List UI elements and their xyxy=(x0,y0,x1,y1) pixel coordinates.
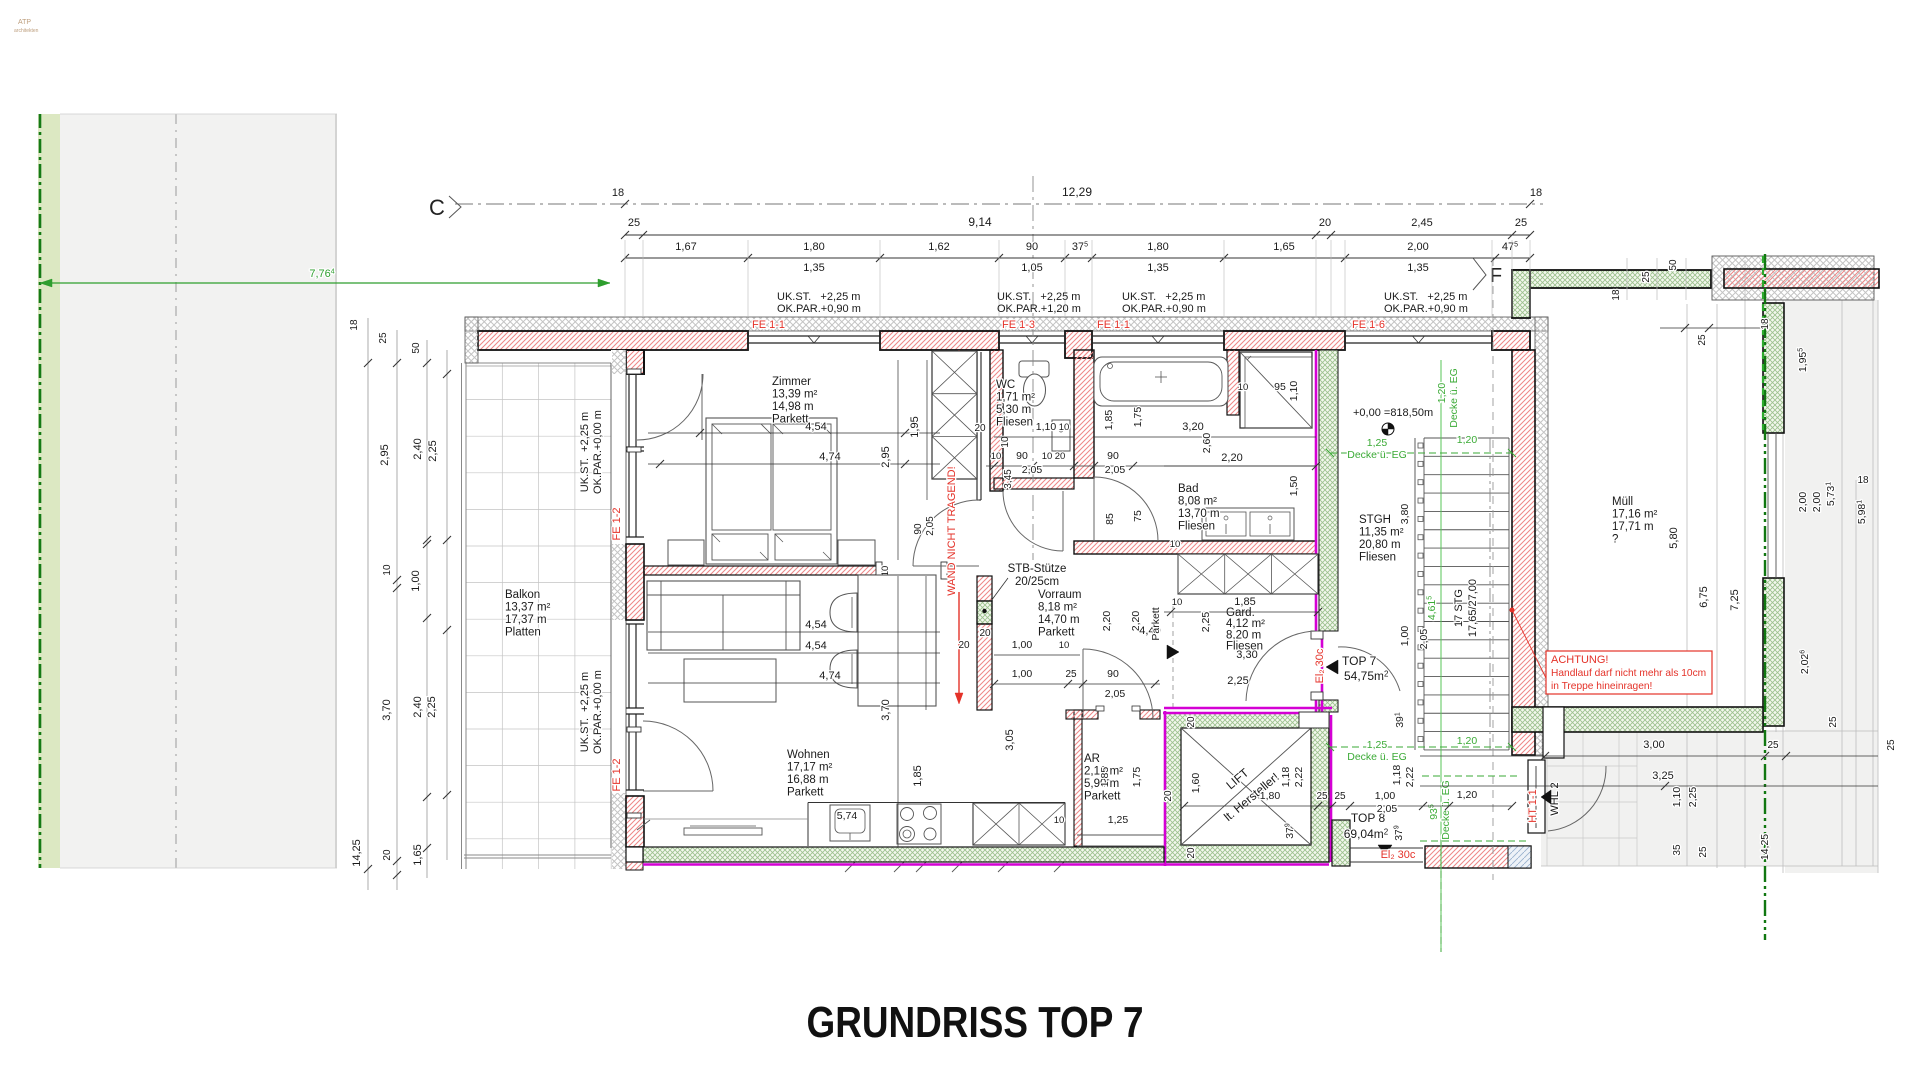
svg-text:UK.ST. +2,25 m: UK.ST. +2,25 m xyxy=(777,291,860,303)
svg-text:1,65: 1,65 xyxy=(412,844,424,865)
svg-text:13,37 m²: 13,37 m² xyxy=(505,602,551,614)
svg-text:1,00: 1,00 xyxy=(1012,639,1033,651)
svg-text:25: 25 xyxy=(378,332,389,344)
svg-text:3,45: 3,45 xyxy=(1003,469,1014,489)
svg-text:FE 1-2: FE 1-2 xyxy=(611,758,623,791)
svg-text:95: 95 xyxy=(1274,381,1286,393)
svg-text:GRUNDRISS TOP 7: GRUNDRISS TOP 7 xyxy=(807,998,1144,1047)
svg-text:25: 25 xyxy=(1828,716,1839,728)
svg-text:C: C xyxy=(429,195,445,220)
svg-text:13,39 m²: 13,39 m² xyxy=(772,389,818,401)
svg-text:18: 18 xyxy=(1857,475,1869,486)
svg-text:Zimmer: Zimmer xyxy=(772,376,811,388)
svg-text:2,95: 2,95 xyxy=(379,444,391,465)
svg-text:FE 1-3: FE 1-3 xyxy=(1002,319,1035,331)
svg-text:25: 25 xyxy=(1065,669,1077,680)
svg-text:90: 90 xyxy=(1107,668,1119,680)
svg-text:1,35: 1,35 xyxy=(803,262,824,274)
svg-text:2,25: 2,25 xyxy=(426,696,438,717)
svg-text:7,25: 7,25 xyxy=(1729,589,1741,610)
svg-text:1,60: 1,60 xyxy=(1190,773,1202,794)
svg-text:1,10: 1,10 xyxy=(1036,421,1057,433)
svg-text:1,75: 1,75 xyxy=(1132,407,1144,428)
svg-text:WC: WC xyxy=(996,379,1015,391)
svg-text:18: 18 xyxy=(1611,289,1622,301)
svg-text:4,54: 4,54 xyxy=(805,619,826,631)
svg-text:1,18: 1,18 xyxy=(1280,767,1292,788)
svg-text:1,80: 1,80 xyxy=(1260,790,1281,802)
svg-text:18: 18 xyxy=(1530,187,1542,199)
svg-text:25: 25 xyxy=(1316,791,1328,802)
svg-text:1,71 m²: 1,71 m² xyxy=(996,392,1035,404)
svg-text:WAND NICHT TRAGEND!: WAND NICHT TRAGEND! xyxy=(946,466,958,595)
svg-text:8,18 m²: 8,18 m² xyxy=(1038,602,1077,614)
svg-text:Vorraum: Vorraum xyxy=(1038,589,1081,601)
svg-text:25: 25 xyxy=(1886,739,1897,751)
svg-text:1,18: 1,18 xyxy=(1391,765,1403,786)
svg-text:75: 75 xyxy=(1132,510,1144,522)
svg-text:4,54: 4,54 xyxy=(805,640,826,652)
svg-text:20: 20 xyxy=(1055,451,1066,462)
svg-text:9,14: 9,14 xyxy=(968,215,992,229)
svg-text:1,10: 1,10 xyxy=(1288,381,1300,402)
svg-text:OK.PAR.+0,00 m: OK.PAR.+0,00 m xyxy=(592,410,604,494)
svg-text:OK.PAR.+0,00 m: OK.PAR.+0,00 m xyxy=(592,670,604,754)
svg-text:54,75m2: 54,75m2 xyxy=(1344,669,1389,683)
svg-text:ATP: ATP xyxy=(18,19,31,26)
svg-text:50: 50 xyxy=(411,342,422,354)
svg-text:1,62: 1,62 xyxy=(928,241,949,253)
svg-text:10: 10 xyxy=(1172,597,1183,608)
svg-text:3,30: 3,30 xyxy=(1236,649,1257,661)
svg-text:25: 25 xyxy=(1334,791,1346,802)
svg-text:Müll: Müll xyxy=(1612,496,1633,508)
svg-text:17,37 m: 17,37 m xyxy=(505,614,547,626)
svg-text:10: 10 xyxy=(1000,436,1011,448)
svg-text:FE 1-2: FE 1-2 xyxy=(611,507,623,540)
svg-text:2,05: 2,05 xyxy=(1377,803,1398,815)
svg-text:El₂ 30c: El₂ 30c xyxy=(1381,849,1416,861)
svg-text:1,20: 1,20 xyxy=(1457,735,1478,747)
svg-text:20: 20 xyxy=(382,849,393,861)
svg-text:1,35: 1,35 xyxy=(1407,262,1428,274)
svg-text:3,70: 3,70 xyxy=(381,699,393,720)
svg-text:90: 90 xyxy=(1026,241,1038,253)
svg-text:2,25: 2,25 xyxy=(1200,612,1212,633)
svg-text:3,00: 3,00 xyxy=(1643,739,1664,751)
svg-text:50: 50 xyxy=(1668,259,1679,271)
svg-text:14,25: 14,25 xyxy=(1759,834,1771,860)
svg-text:10: 10 xyxy=(1238,382,1249,393)
svg-text:2,00: 2,00 xyxy=(1407,241,1428,253)
svg-text:8,20 m: 8,20 m xyxy=(1226,629,1261,641)
svg-text:14,70 m: 14,70 m xyxy=(1038,614,1080,626)
svg-text:Parkett: Parkett xyxy=(787,787,824,799)
svg-text:10: 10 xyxy=(991,451,1002,462)
svg-text:OK.PAR.+0,90 m: OK.PAR.+0,90 m xyxy=(1384,303,1468,315)
svg-text:1,65: 1,65 xyxy=(1273,241,1294,253)
svg-text:4,74: 4,74 xyxy=(819,451,840,463)
svg-text:UK.ST. +2,25 m: UK.ST. +2,25 m xyxy=(997,291,1080,303)
svg-text:UK.ST. +2,25 m: UK.ST. +2,25 m xyxy=(1384,291,1467,303)
svg-text:OK.PAR.+0,90 m: OK.PAR.+0,90 m xyxy=(777,303,861,315)
svg-text:2,40: 2,40 xyxy=(412,438,424,459)
svg-text:OK.PAR.+0,90 m: OK.PAR.+0,90 m xyxy=(1122,303,1206,315)
svg-text:1,05: 1,05 xyxy=(1021,262,1042,274)
svg-text:2,05: 2,05 xyxy=(1418,629,1430,650)
svg-text:18: 18 xyxy=(612,187,624,199)
svg-text:1,85: 1,85 xyxy=(1099,767,1111,788)
svg-text:17,71 m: 17,71 m xyxy=(1612,521,1654,533)
svg-text:3,05: 3,05 xyxy=(1004,729,1016,750)
svg-text:2,45: 2,45 xyxy=(1411,217,1432,229)
svg-text:1,80: 1,80 xyxy=(1147,241,1168,253)
svg-text:10: 10 xyxy=(1054,815,1065,826)
svg-text:17,17 m²: 17,17 m² xyxy=(787,762,833,774)
svg-text:Fliesen: Fliesen xyxy=(1359,552,1396,564)
svg-text:20: 20 xyxy=(1163,790,1174,802)
svg-text:3,80: 3,80 xyxy=(1399,504,1411,525)
svg-text:1,00: 1,00 xyxy=(1375,790,1396,802)
svg-text:25: 25 xyxy=(1767,740,1779,751)
svg-text:in Treppe hineinragen!: in Treppe hineinragen! xyxy=(1551,681,1652,692)
svg-text:25: 25 xyxy=(1698,846,1709,858)
svg-text:2,22: 2,22 xyxy=(1404,767,1416,788)
svg-text:14,25: 14,25 xyxy=(351,839,363,867)
svg-text:El₂ 30c: El₂ 30c xyxy=(1314,648,1326,683)
svg-text:Decke ü. EG: Decke ü. EG xyxy=(1347,449,1407,461)
svg-text:20: 20 xyxy=(1186,716,1197,728)
svg-text:Parkett: Parkett xyxy=(772,414,809,426)
svg-text:ACHTUNG!: ACHTUNG! xyxy=(1551,654,1608,666)
svg-text:Decke ü. EG: Decke ü. EG xyxy=(1347,751,1407,763)
svg-text:17,65/27,00: 17,65/27,00 xyxy=(1467,579,1479,637)
svg-text:Bad: Bad xyxy=(1178,483,1198,495)
svg-text:1,00: 1,00 xyxy=(1399,626,1411,647)
svg-text:1,25: 1,25 xyxy=(1108,814,1129,826)
svg-text:Decke ü. EG: Decke ü. EG xyxy=(1440,780,1452,840)
svg-text:25: 25 xyxy=(1515,217,1527,229)
svg-text:4,74: 4,74 xyxy=(819,670,840,682)
svg-text:UK.ST. +2,25 m: UK.ST. +2,25 m xyxy=(579,672,591,752)
svg-text:STGH: STGH xyxy=(1359,514,1391,526)
svg-text:Wohnen: Wohnen xyxy=(787,749,830,761)
svg-text:10: 10 xyxy=(1170,539,1181,550)
svg-text:UK.ST. +2,25 m: UK.ST. +2,25 m xyxy=(1122,291,1205,303)
svg-text:2,00: 2,00 xyxy=(1811,492,1823,513)
svg-text:1,85: 1,85 xyxy=(912,765,924,786)
svg-text:2,05: 2,05 xyxy=(1105,688,1126,700)
svg-text:20/25cm: 20/25cm xyxy=(1015,576,1059,588)
svg-text:20: 20 xyxy=(958,640,970,651)
svg-text:1,85: 1,85 xyxy=(1103,410,1115,431)
svg-text:Parkett: Parkett xyxy=(1150,607,1162,640)
svg-text:1,95: 1,95 xyxy=(909,416,921,437)
svg-text:6,75: 6,75 xyxy=(1698,586,1710,607)
svg-text:14,98 m: 14,98 m xyxy=(772,401,814,413)
svg-text:18: 18 xyxy=(1760,318,1771,330)
svg-text:13,70 m: 13,70 m xyxy=(1178,508,1220,520)
svg-text:25: 25 xyxy=(1697,334,1708,346)
svg-text:STB-Stütze: STB-Stütze xyxy=(1008,563,1067,575)
svg-text:2,22: 2,22 xyxy=(1293,767,1305,788)
svg-text:3,20: 3,20 xyxy=(1182,421,1203,433)
svg-text:1,67: 1,67 xyxy=(675,241,696,253)
svg-text:1,10: 1,10 xyxy=(1671,787,1683,808)
svg-text:3,25: 3,25 xyxy=(1652,770,1673,782)
svg-text:OK.PAR.+1,20 m: OK.PAR.+1,20 m xyxy=(997,303,1081,315)
svg-text:2,60: 2,60 xyxy=(1201,433,1213,454)
svg-text:Balkon: Balkon xyxy=(505,589,540,601)
svg-text:Fliesen: Fliesen xyxy=(996,417,1033,429)
svg-text:20: 20 xyxy=(1186,847,1197,859)
svg-text:2,05: 2,05 xyxy=(925,516,936,536)
svg-text:Parkett: Parkett xyxy=(1038,627,1075,639)
svg-text:2,00: 2,00 xyxy=(1797,492,1809,513)
svg-text:1,00: 1,00 xyxy=(410,570,422,591)
svg-text:17,16 m²: 17,16 m² xyxy=(1612,509,1658,521)
svg-text:4,12 m²: 4,12 m² xyxy=(1226,618,1265,630)
svg-text:FE 1-1: FE 1-1 xyxy=(1097,319,1130,331)
svg-text:25: 25 xyxy=(628,217,640,229)
svg-text:90: 90 xyxy=(1107,450,1119,462)
svg-text:20: 20 xyxy=(979,628,991,639)
svg-text:1,25: 1,25 xyxy=(1367,739,1388,751)
svg-text:5,74: 5,74 xyxy=(837,810,858,822)
svg-text:69,04m2: 69,04m2 xyxy=(1344,827,1389,841)
svg-text:2,25: 2,25 xyxy=(427,440,439,461)
svg-text:1,20: 1,20 xyxy=(1436,383,1448,404)
svg-text:Platten: Platten xyxy=(505,627,541,639)
svg-text:1,25: 1,25 xyxy=(1367,437,1388,449)
svg-text:2,20: 2,20 xyxy=(1221,452,1242,464)
svg-text:1,20: 1,20 xyxy=(1457,434,1478,446)
svg-text:FE 1-1: FE 1-1 xyxy=(752,319,785,331)
svg-text:2,25: 2,25 xyxy=(1687,787,1699,808)
svg-text:25: 25 xyxy=(1641,271,1652,283)
svg-text:1,20: 1,20 xyxy=(1457,789,1478,801)
svg-text:Parkett: Parkett xyxy=(1084,791,1121,803)
svg-text:Gard.: Gard. xyxy=(1226,607,1255,619)
svg-text:3,70: 3,70 xyxy=(880,699,892,720)
svg-text:20,80 m: 20,80 m xyxy=(1359,539,1401,551)
svg-text:AR: AR xyxy=(1084,753,1100,765)
svg-text:10: 10 xyxy=(1042,451,1053,462)
svg-text:10: 10 xyxy=(382,564,393,576)
svg-text:2,20: 2,20 xyxy=(1101,611,1113,632)
svg-text:2,40: 2,40 xyxy=(412,696,424,717)
svg-text:Handlauf darf nicht mehr als 1: Handlauf darf nicht mehr als 10cm xyxy=(1551,668,1706,679)
svg-text:1,35: 1,35 xyxy=(1147,262,1168,274)
svg-text:10: 10 xyxy=(1059,640,1070,651)
svg-text:TOP 7: TOP 7 xyxy=(1342,654,1377,668)
svg-text:85: 85 xyxy=(1104,513,1116,525)
svg-text:FE 1-6: FE 1-6 xyxy=(1352,319,1385,331)
svg-text:HT 1-1: HT 1-1 xyxy=(1527,789,1539,822)
svg-text:1,80: 1,80 xyxy=(803,241,824,253)
svg-text:20: 20 xyxy=(1319,217,1331,229)
svg-text:2,25: 2,25 xyxy=(1227,675,1248,687)
svg-text:5,80: 5,80 xyxy=(1668,527,1680,548)
svg-text:1,85: 1,85 xyxy=(1234,596,1255,608)
svg-text:12,29: 12,29 xyxy=(1062,185,1092,199)
svg-text:16,88 m: 16,88 m xyxy=(787,774,829,786)
svg-text:4,54: 4,54 xyxy=(805,421,826,433)
svg-text:+0,00 =818,50m: +0,00 =818,50m xyxy=(1353,407,1433,419)
svg-text:1,75: 1,75 xyxy=(1131,767,1143,788)
svg-text:architekten: architekten xyxy=(14,28,39,34)
svg-text:20: 20 xyxy=(974,423,986,434)
svg-text:UK.ST. +2,25 m: UK.ST. +2,25 m xyxy=(579,412,591,492)
svg-text:1,50: 1,50 xyxy=(1288,476,1300,497)
svg-text:?: ? xyxy=(1612,534,1618,546)
svg-text:35: 35 xyxy=(1672,844,1683,856)
svg-text:10: 10 xyxy=(1059,422,1070,433)
svg-text:2,05: 2,05 xyxy=(1022,464,1043,476)
svg-text:17 STG: 17 STG xyxy=(1453,589,1465,627)
svg-text:Decke ü. EG: Decke ü. EG xyxy=(1448,368,1460,428)
svg-text:90: 90 xyxy=(913,523,924,535)
svg-text:1,00: 1,00 xyxy=(1012,668,1033,680)
svg-text:Fliesen: Fliesen xyxy=(1178,521,1215,533)
svg-text:8,08 m²: 8,08 m² xyxy=(1178,496,1217,508)
svg-text:2,95: 2,95 xyxy=(880,446,892,467)
svg-text:11,35 m²: 11,35 m² xyxy=(1359,527,1404,539)
svg-text:5,30 m: 5,30 m xyxy=(996,404,1031,416)
svg-text:2,05: 2,05 xyxy=(1105,464,1126,476)
svg-text:90: 90 xyxy=(1016,450,1028,462)
svg-text:18: 18 xyxy=(349,319,360,331)
